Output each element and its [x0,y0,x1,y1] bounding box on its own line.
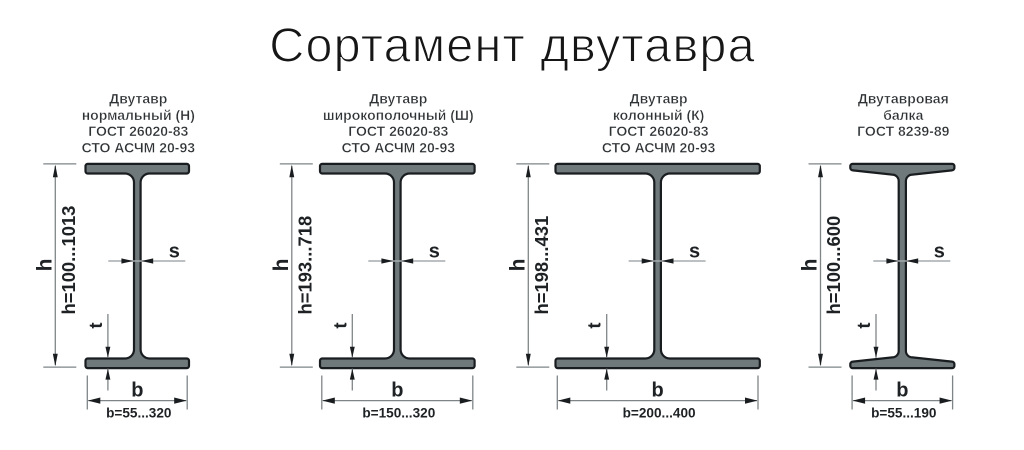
svg-text:t: t [853,322,874,328]
svg-text:Сортамент двутавра: Сортамент двутавра [269,19,756,73]
svg-text:ГОСТ 26020-83: ГОСТ 26020-83 [348,123,448,139]
svg-text:h=100...600: h=100...600 [823,216,844,315]
svg-text:s: s [429,241,440,263]
svg-text:s: s [689,241,700,263]
svg-text:b: b [131,380,143,402]
svg-text:ГОСТ 26020-83: ГОСТ 26020-83 [88,123,188,139]
svg-text:ГОСТ 8239-89: ГОСТ 8239-89 [857,123,949,139]
svg-text:h=100...1013: h=100...1013 [58,206,79,315]
svg-text:t: t [329,322,350,328]
svg-text:Двутавр: Двутавр [630,91,688,107]
svg-text:h=198...431: h=198...431 [531,216,552,315]
svg-text:h: h [270,259,293,272]
svg-text:b: b [391,380,403,402]
svg-text:Двутавр: Двутавр [109,91,167,107]
svg-text:b: b [651,380,663,402]
svg-text:s: s [169,241,180,263]
svg-text:b=200...400: b=200...400 [623,406,696,421]
svg-text:h=193...718: h=193...718 [294,216,315,315]
svg-text:колонный (К): колонный (К) [613,107,705,123]
svg-text:СТО АСЧМ 20-93: СТО АСЧМ 20-93 [602,139,716,155]
svg-text:b=55...320: b=55...320 [106,406,171,421]
svg-text:нормальный (Н): нормальный (Н) [82,107,195,123]
svg-text:Двутавр: Двутавр [369,91,427,107]
svg-text:балка: балка [883,107,923,123]
svg-text:ГОСТ 26020-83: ГОСТ 26020-83 [609,123,709,139]
svg-text:b=150...320: b=150...320 [362,406,435,421]
svg-text:h: h [506,259,529,272]
svg-text:СТО АСЧМ 20-93: СТО АСЧМ 20-93 [342,139,456,155]
svg-text:t: t [85,322,106,328]
svg-text:t: t [584,322,605,328]
svg-text:h: h [799,259,822,272]
svg-text:h: h [33,259,56,272]
svg-text:Двутавровая: Двутавровая [858,91,949,107]
svg-text:широкополочный (Ш): широкополочный (Ш) [323,107,474,123]
svg-text:b=55...190: b=55...190 [871,406,936,421]
svg-text:СТО АСЧМ 20-93: СТО АСЧМ 20-93 [82,139,196,155]
svg-text:b: b [896,380,908,402]
svg-text:s: s [934,241,945,263]
